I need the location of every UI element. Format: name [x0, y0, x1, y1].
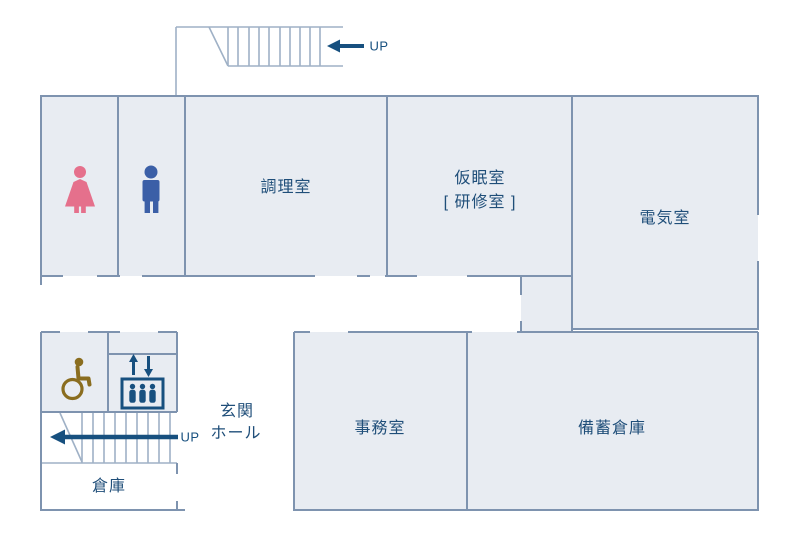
room-warehouse-label: 倉庫 [92, 479, 126, 495]
floor-plan-drawing [0, 0, 800, 540]
room-stock-warehouse-label: 備蓄倉庫 [578, 421, 646, 437]
staircase-top-treads [228, 27, 320, 66]
small-room-fill [521, 277, 572, 332]
room-accessible-toilet-fill [41, 332, 108, 412]
room-cooking-label: 調理室 [260, 180, 311, 196]
room-nap-label-line1: 仮眠室 [454, 171, 505, 187]
entrance-hall-label-line1: 玄関 [220, 404, 254, 420]
staircase-top [176, 27, 343, 95]
entrance-hall-label-line2: ホール [210, 426, 261, 442]
room-electrical-fill [572, 276, 758, 329]
up-arrow-top-icon [327, 40, 364, 53]
room-office-label: 事務室 [354, 421, 405, 437]
stairs-bottom-up-label: UP [180, 431, 199, 444]
floor-plan: 調理室 仮眠室 [ 研修室 ] 電気室 事務室 備蓄倉庫 倉庫 玄関 ホール U… [0, 0, 800, 540]
room-nap-label-line2: [ 研修室 ] [444, 195, 517, 211]
stairs-top-up-label: UP [369, 40, 388, 53]
room-electrical-label: 電気室 [639, 211, 690, 227]
